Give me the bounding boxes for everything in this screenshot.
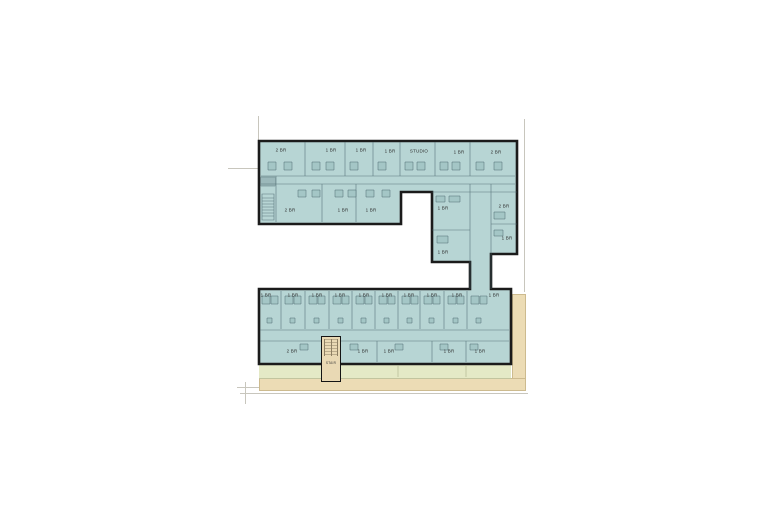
unit-label: 1 BR xyxy=(452,293,463,298)
unit-label: 1 BR xyxy=(356,148,367,153)
unit-label: 1 BR xyxy=(438,206,449,211)
stair-tower: STAIR xyxy=(321,336,341,382)
unit-label: 1 BR xyxy=(454,150,465,155)
unit-label: STUDIO xyxy=(410,149,428,154)
unit-label: 1 BR xyxy=(366,208,377,213)
unit-label: 1 BR xyxy=(358,349,369,354)
building-plan-drawing xyxy=(0,0,780,505)
unit-label: 1 BR xyxy=(312,293,323,298)
unit-label: 1 BR xyxy=(326,148,337,153)
unit-label: 1 BR xyxy=(359,293,370,298)
unit-label: 1 BR xyxy=(338,208,349,213)
unit-label: 2 BR xyxy=(499,204,510,209)
terrace-dividers xyxy=(330,365,466,377)
stair-treads xyxy=(324,339,338,356)
unit-label: 1 BR xyxy=(335,293,346,298)
stair-label: STAIR xyxy=(322,361,340,365)
unit-label: 1 BR xyxy=(288,293,299,298)
unit-label: 1 BR xyxy=(438,250,449,255)
unit-label: 1 BR xyxy=(475,349,486,354)
unit-label: 2 BR xyxy=(285,208,296,213)
unit-label: 1 BR xyxy=(261,293,272,298)
unit-label: 1 BR xyxy=(384,349,395,354)
unit-label: 1 BR xyxy=(385,149,396,154)
unit-label: 1 BR xyxy=(404,293,415,298)
building-footprint xyxy=(259,141,517,364)
unit-label: 1 BR xyxy=(382,293,393,298)
floor-plan-canvas: STAIR 2 BR1 BR1 BR1 BRSTUDIO1 BR2 BR2 BR… xyxy=(0,0,780,505)
unit-label: 1 BR xyxy=(444,349,455,354)
unit-label: 1 BR xyxy=(489,293,500,298)
unit-label: 1 BR xyxy=(427,293,438,298)
unit-label: 2 BR xyxy=(287,349,298,354)
unit-label: 2 BR xyxy=(491,150,502,155)
unit-label: 1 BR xyxy=(502,236,513,241)
unit-label: 2 BR xyxy=(276,148,287,153)
